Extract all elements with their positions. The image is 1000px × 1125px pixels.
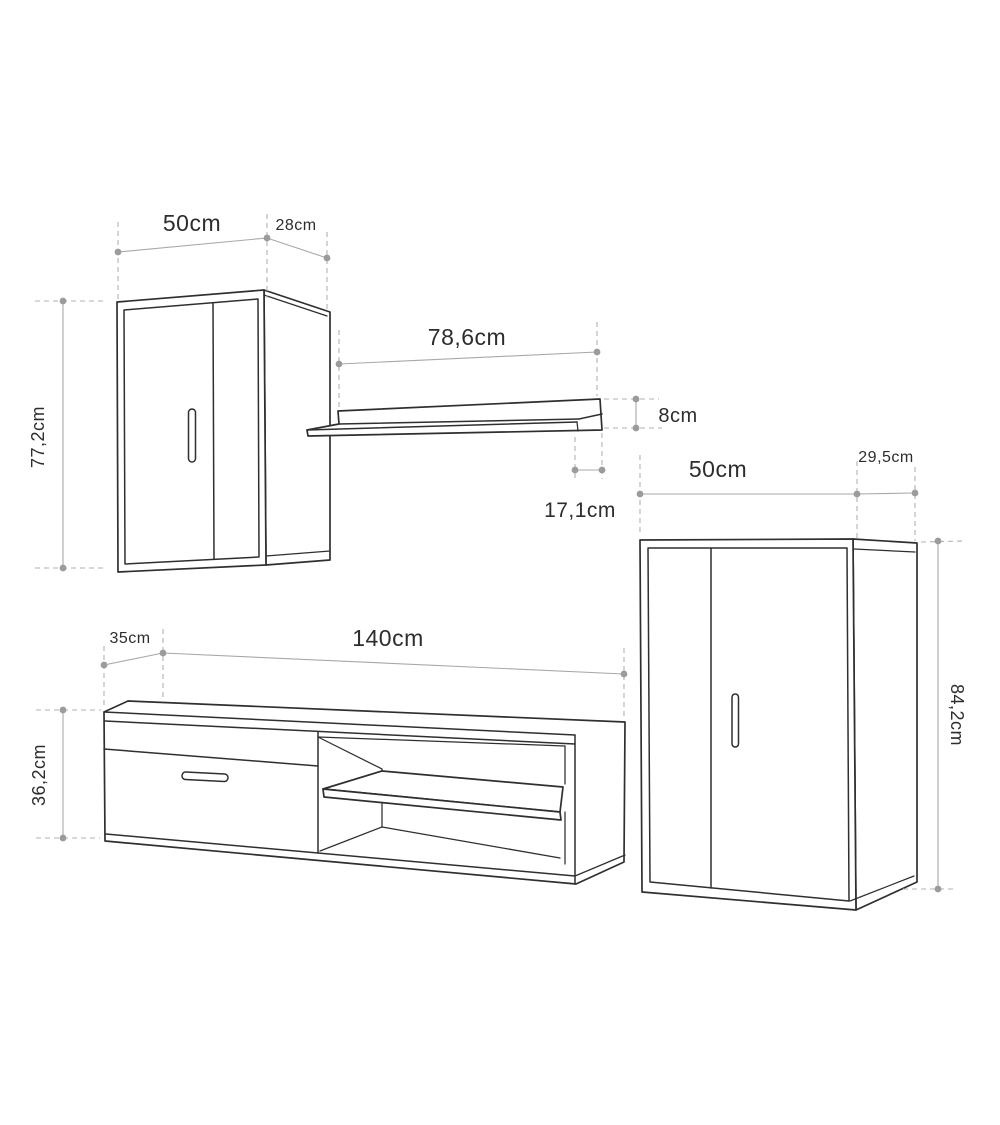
tv-stand-drawer-handle [182,772,228,782]
wall-shelf-width-label: 78,6cm [428,324,506,350]
tall-cabinet-depth-label: 29,5cm [858,449,913,466]
tall-cabinet-width-label: 50cm [689,456,747,482]
wall-cabinet-depth-label: 28cm [275,217,316,234]
wall-cabinet-handle [189,409,196,462]
tall-cabinet-handle [732,694,739,747]
tv-stand-drawing [104,701,625,884]
wall-cabinet-height-label: 77,2cm [28,406,48,468]
tall-cabinet-height-label: 84,2cm [947,684,967,746]
wall-cabinet-door-divider [213,303,214,559]
wall-shelf-depth-label: 17,1cm [544,499,616,522]
width-dimension-line [163,653,624,674]
depth-dimension-line [857,493,915,494]
furniture-dimensions-diagram: 50cm 28cm 77,2cm 78,6cm 8cm 17,1cm [0,0,1000,1125]
wall-cabinet-drawing [117,290,330,572]
width-dimension-line [118,238,267,252]
tall-cabinet-side-panel [853,539,917,910]
tall-cabinet-drawing [640,539,917,910]
diagram-canvas: 50cm 28cm 77,2cm 78,6cm 8cm 17,1cm [0,0,1000,1125]
wall-cabinet-width-label: 50cm [163,210,221,236]
width-dimension-line [339,352,597,364]
tv-stand-depth-label: 35cm [109,630,150,647]
tv-stand-height-label: 36,2cm [29,744,49,806]
wall-shelf-back-rail [307,399,602,436]
depth-dimension-line [104,653,163,665]
depth-dimension-line [267,238,327,258]
tall-cabinet-front-face [640,539,856,910]
extension-line [921,541,963,542]
wall-shelf-drawing [307,399,602,436]
wall-shelf-height-label: 8cm [658,405,697,427]
tv-stand-width-label: 140cm [352,625,424,651]
